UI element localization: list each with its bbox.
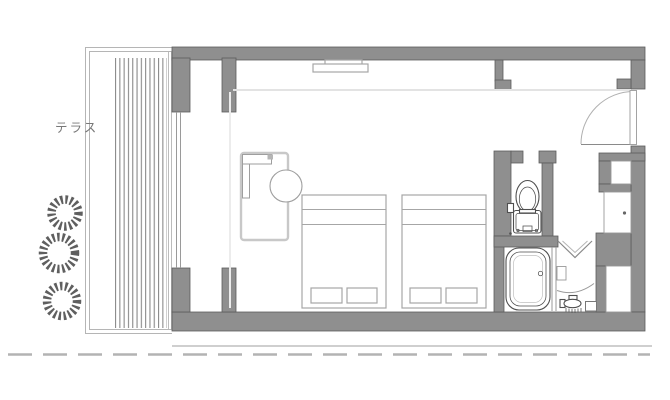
pipe-shaft (606, 266, 631, 312)
tv-shelf (313, 60, 368, 72)
bed-2 (402, 195, 486, 308)
wall-shelf (557, 267, 566, 281)
wc-wall-top-left (511, 151, 523, 163)
wc-wall-top-right (539, 151, 556, 163)
planting-icon (43, 237, 75, 269)
folding-door-leaf-inner (563, 241, 588, 253)
wc-wall-right (542, 163, 553, 236)
bed-1 (302, 195, 386, 308)
toilet (508, 181, 542, 235)
desk-side-panel (243, 164, 250, 198)
wall-top (172, 47, 645, 60)
door-leaf (630, 91, 637, 145)
window-column-bottom-outer (172, 268, 190, 312)
pillow (311, 288, 342, 303)
planting-icon (47, 286, 77, 316)
terrace: テラス (43, 48, 172, 334)
washroom (557, 267, 597, 314)
planting-icon (52, 200, 79, 227)
flush-handle (508, 204, 514, 213)
wall-jut-left-foot (495, 80, 511, 90)
desk-corner-block (268, 155, 274, 160)
bathtub (506, 248, 550, 310)
door-swing-arc (581, 92, 634, 145)
wall-right (631, 146, 645, 312)
niche-left-wall (599, 161, 611, 184)
chair (270, 170, 302, 202)
seat-hinge (520, 210, 536, 214)
pillow (410, 288, 441, 303)
washbasin-faucet-icon (560, 296, 581, 314)
wall-bottom (172, 312, 645, 331)
wc-wall-left (494, 151, 511, 236)
pillow (446, 288, 477, 303)
wall-right-upper (631, 60, 645, 89)
floor-plan-drawing: テラス (0, 0, 670, 400)
wall-right-upper-foot (617, 79, 631, 89)
storage-niche (611, 161, 631, 184)
tv-board (313, 64, 368, 72)
faucet-body (564, 299, 581, 307)
stool (586, 302, 597, 312)
desk-counter (243, 155, 272, 165)
shaft-left-wall (596, 266, 606, 312)
closet-cabinet (604, 192, 631, 233)
door-stop-icon (509, 232, 512, 235)
folding-door-leaf (558, 241, 592, 258)
window-column-top-outer (172, 58, 190, 112)
storage-mid-block (596, 233, 631, 266)
niche-sill (599, 184, 631, 192)
storage-top-bar (599, 153, 645, 161)
louver-screen (115, 58, 167, 328)
desk-unit (241, 153, 302, 240)
bath-wall-band (494, 236, 558, 247)
entrance-door (581, 91, 637, 145)
pillow (347, 288, 377, 303)
counter-curve (557, 284, 594, 293)
cabinet-knob-icon (623, 211, 626, 214)
tub-outer (506, 248, 550, 310)
floor-plan-canvas: テラス (0, 0, 670, 400)
terrace-label: テラス (55, 121, 98, 135)
wall-jut-left (495, 60, 503, 81)
folding-door (558, 241, 592, 258)
